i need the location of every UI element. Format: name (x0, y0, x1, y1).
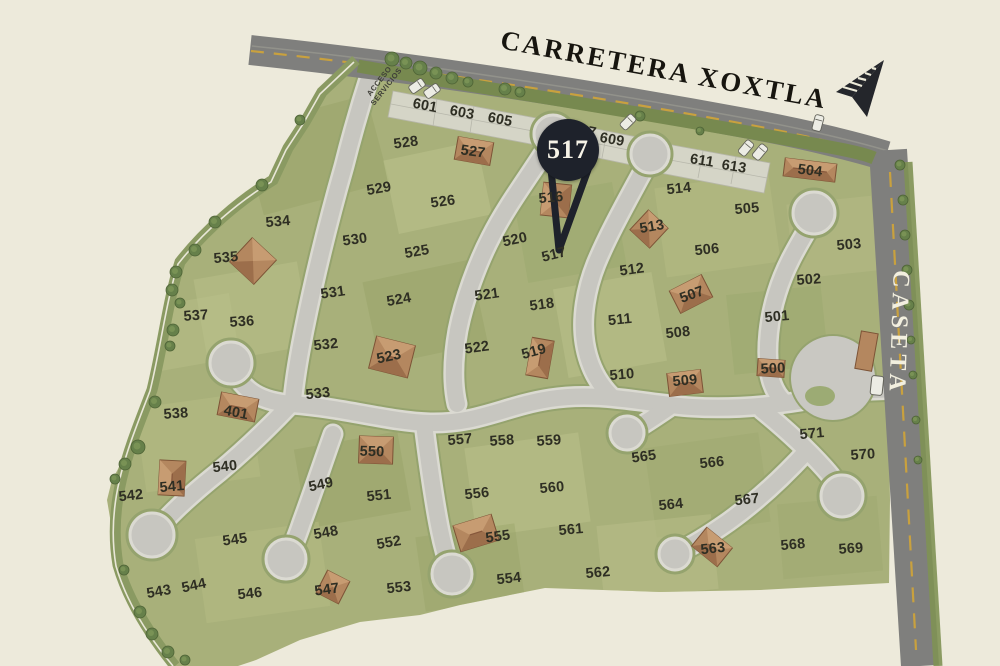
caseta-road (888, 150, 938, 666)
lot-map: 6016036056076096116135145055045035065135… (0, 0, 1000, 666)
lot-517-marker-label: 517 (547, 135, 589, 165)
house-icon-509 (667, 370, 704, 397)
lot-517-marker[interactable]: 517 (537, 119, 599, 181)
house-icon-500 (757, 359, 785, 378)
caseta-label: CASETA (882, 270, 913, 396)
north-arrow-icon (836, 60, 884, 117)
map-graphics (0, 0, 1000, 666)
house-icon-550 (359, 436, 394, 464)
house-icon-541 (158, 460, 186, 496)
